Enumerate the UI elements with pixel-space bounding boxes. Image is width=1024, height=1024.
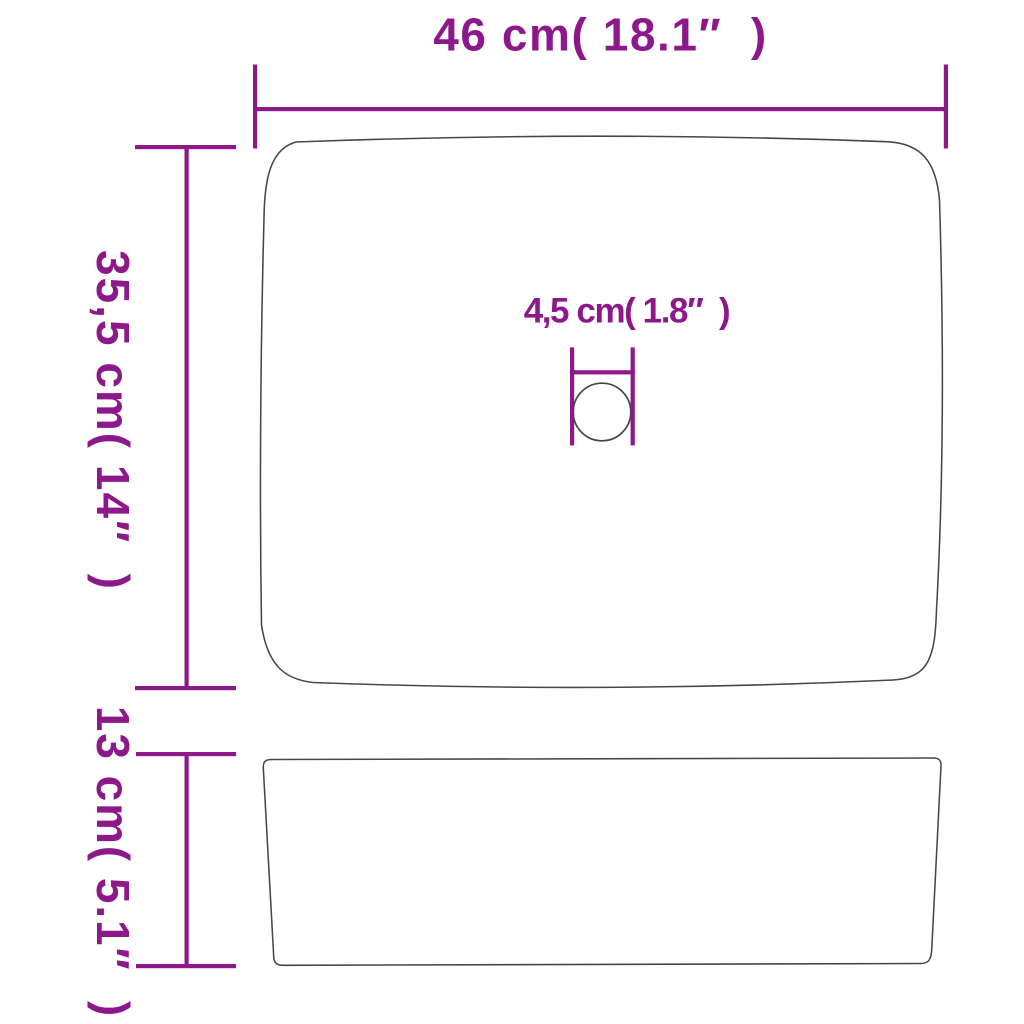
svg-text:4,5 cm( 1.8″ ): 4,5 cm( 1.8″ ) bbox=[524, 292, 730, 331]
svg-text:13 cm( 5.1″ ): 13 cm( 5.1″ ) bbox=[87, 706, 139, 1018]
svg-text:46 cm( 18.1″ ): 46 cm( 18.1″ ) bbox=[433, 9, 768, 61]
svg-text:35,5 cm( 14″ ): 35,5 cm( 14″ ) bbox=[87, 250, 139, 591]
